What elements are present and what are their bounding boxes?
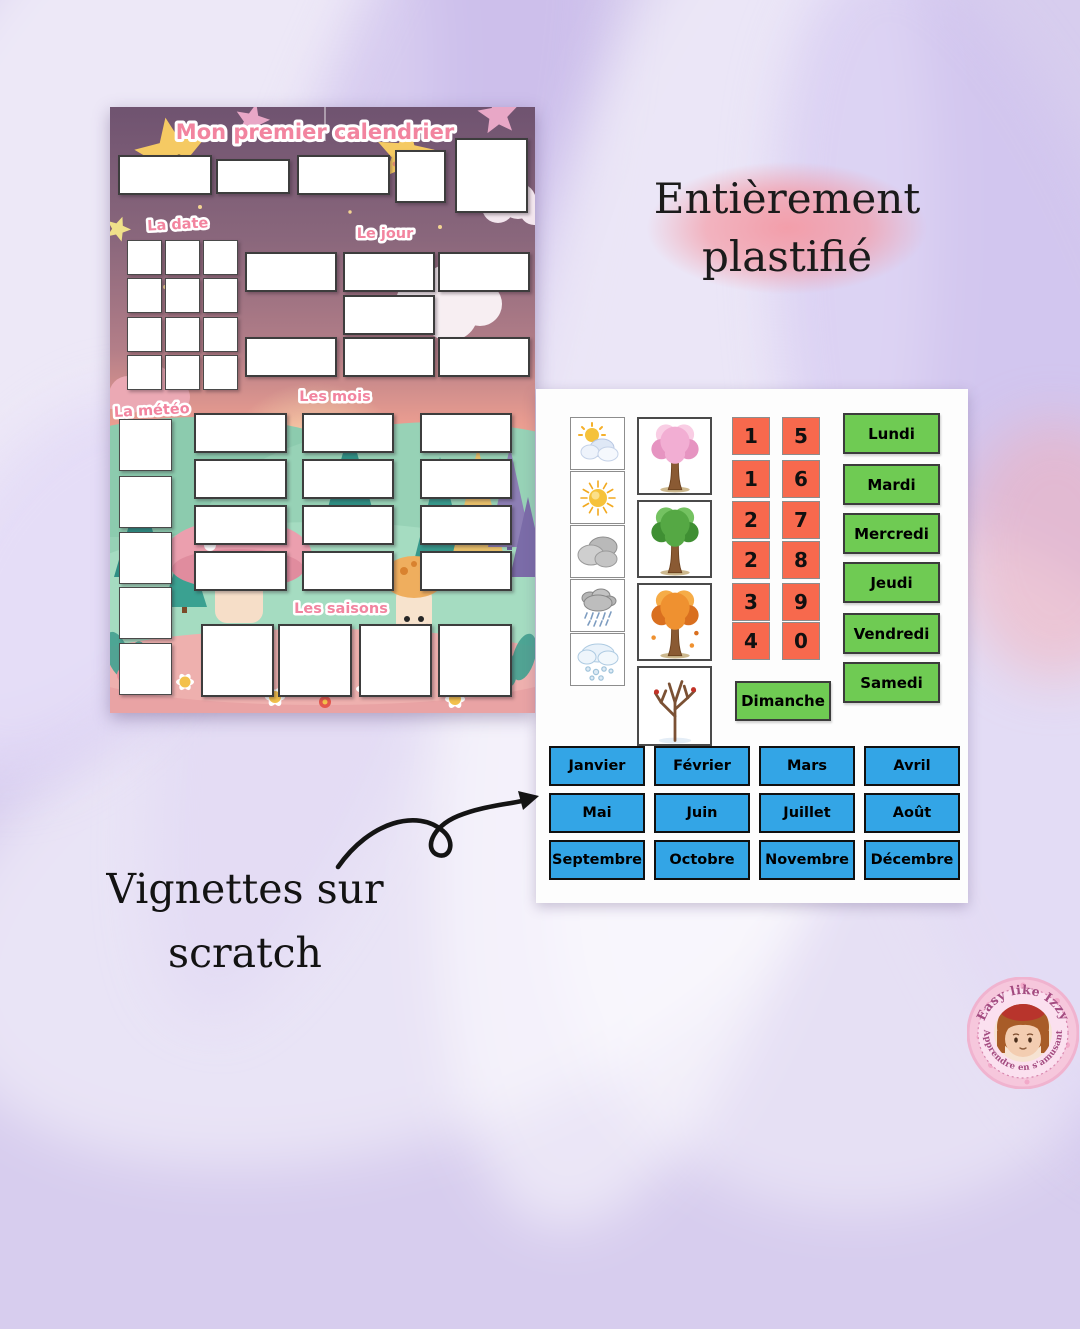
fabric-fold xyxy=(960,420,1080,680)
label-les-mois: Les mois xyxy=(299,389,370,405)
scratch-caption-line2: scratch xyxy=(95,922,395,986)
date-slot xyxy=(165,317,200,352)
season-slot xyxy=(278,624,352,697)
date-slot xyxy=(165,278,200,313)
month-slot xyxy=(302,413,394,453)
weather-vignette xyxy=(570,471,625,524)
month-tile-avril: Avril xyxy=(864,746,960,786)
month-slot xyxy=(194,413,287,453)
top-slot xyxy=(297,155,390,195)
number-tile: 7 xyxy=(782,501,820,539)
weather-vignette xyxy=(570,417,625,470)
season-slot xyxy=(438,624,512,697)
top-slot xyxy=(118,155,212,195)
top-slot xyxy=(216,159,290,194)
day-slot xyxy=(438,252,530,292)
month-slot xyxy=(420,505,512,545)
month-tile-decembre: Décembre xyxy=(864,840,960,880)
season-vignette xyxy=(637,666,712,746)
product-image: { "poster": { "title": "Mon premier cale… xyxy=(0,0,1080,1080)
weather-slot xyxy=(119,643,172,695)
weather-slot xyxy=(119,419,172,471)
month-tile-juin: Juin xyxy=(654,793,750,833)
day-slot xyxy=(245,337,337,377)
label-la-date: La date xyxy=(147,215,209,234)
month-tile-octobre: Octobre xyxy=(654,840,750,880)
day-tile-vendredi: Vendredi xyxy=(843,613,940,654)
date-slot xyxy=(203,240,238,275)
spring-blossom-tree-icon xyxy=(645,421,705,493)
number-tile: 4 xyxy=(732,622,770,660)
date-slot xyxy=(127,278,162,313)
date-slot xyxy=(165,355,200,390)
month-slot xyxy=(194,459,287,499)
sun-behind-cloud-icon xyxy=(573,421,623,467)
month-slot xyxy=(420,413,512,453)
number-tile: 2 xyxy=(732,501,770,539)
month-tile-septembre: Septembre xyxy=(549,840,645,880)
number-tile: 6 xyxy=(782,460,820,498)
months-grid: Janvier Février Mars Avril Mai Juin Juil… xyxy=(549,746,960,880)
date-slot xyxy=(127,355,162,390)
top-slot xyxy=(395,150,446,203)
month-tile-aout: Août xyxy=(864,793,960,833)
snow-cloud-icon xyxy=(573,637,623,683)
day-tile-mercredi: Mercredi xyxy=(843,513,940,554)
cloudy-icon xyxy=(573,529,623,575)
day-slot xyxy=(438,337,530,377)
weather-vignette xyxy=(570,579,625,632)
month-tile-juillet: Juillet xyxy=(759,793,855,833)
scratch-caption: Vignettes sur scratch xyxy=(95,858,395,985)
month-slot xyxy=(194,551,287,591)
label-les-saisons: Les saisons xyxy=(294,601,388,617)
number-tile: 5 xyxy=(782,417,820,455)
rain-cloud-icon xyxy=(573,583,623,629)
day-slot xyxy=(245,252,337,292)
number-tile: 0 xyxy=(782,622,820,660)
laminated-text-line2: plastifié xyxy=(702,228,872,286)
laminated-highlight: Entièrement plastifié xyxy=(607,143,967,313)
brand-logo: Easy like Izzy Apprendre en s'amusant xyxy=(967,977,1079,1089)
date-slot xyxy=(203,317,238,352)
date-slot xyxy=(203,355,238,390)
autumn-orange-tree-icon xyxy=(645,587,705,659)
month-tile-fevrier: Février xyxy=(654,746,750,786)
number-tile: 1 xyxy=(732,417,770,455)
day-tile-jeudi: Jeudi xyxy=(843,562,940,603)
weather-vignette xyxy=(570,633,625,686)
vignettes-panel: 1 1 2 2 3 4 5 6 7 8 9 0 Lundi Mardi Merc… xyxy=(536,389,968,903)
scratch-caption-line1: Vignettes sur xyxy=(95,858,395,922)
day-slot xyxy=(343,295,435,335)
season-vignette xyxy=(637,583,712,661)
weather-slot xyxy=(119,476,172,528)
label-le-jour: Le jour xyxy=(357,226,414,242)
month-slot xyxy=(420,459,512,499)
date-slot xyxy=(203,278,238,313)
month-tile-mars: Mars xyxy=(759,746,855,786)
month-slot xyxy=(194,505,287,545)
number-tile: 1 xyxy=(732,460,770,498)
number-tile: 3 xyxy=(732,583,770,621)
weather-slot xyxy=(119,587,172,639)
season-slot xyxy=(201,624,274,697)
month-tile-novembre: Novembre xyxy=(759,840,855,880)
laminated-text-line1: Entièrement xyxy=(654,170,920,228)
season-slot xyxy=(359,624,432,697)
winter-bare-tree-icon xyxy=(645,670,705,744)
month-tile-janvier: Janvier xyxy=(549,746,645,786)
day-tile-samedi: Samedi xyxy=(843,662,940,703)
summer-green-tree-icon xyxy=(645,504,705,576)
month-tile-mai: Mai xyxy=(549,793,645,833)
calendar-poster: Mon premier calendrier La date Le jour L… xyxy=(110,107,535,713)
month-slot xyxy=(420,551,512,591)
season-vignette xyxy=(637,417,712,495)
day-tile-mardi: Mardi xyxy=(843,464,940,505)
weather-slot xyxy=(119,532,172,584)
number-tile: 2 xyxy=(732,541,770,579)
day-slot xyxy=(343,337,435,377)
top-slot xyxy=(455,138,528,213)
poster-title: Mon premier calendrier xyxy=(176,120,455,144)
sun-icon xyxy=(573,475,623,521)
date-slot xyxy=(165,240,200,275)
month-slot xyxy=(302,551,394,591)
season-vignette xyxy=(637,500,712,578)
number-tile: 9 xyxy=(782,583,820,621)
date-slot xyxy=(127,240,162,275)
arrow-head xyxy=(518,791,539,810)
day-tile-dimanche: Dimanche xyxy=(735,681,831,721)
date-slot xyxy=(127,317,162,352)
month-slot xyxy=(302,459,394,499)
day-tile-lundi: Lundi xyxy=(843,413,940,454)
weather-vignette xyxy=(570,525,625,578)
number-tile: 8 xyxy=(782,541,820,579)
day-slot xyxy=(343,252,435,292)
month-slot xyxy=(302,505,394,545)
